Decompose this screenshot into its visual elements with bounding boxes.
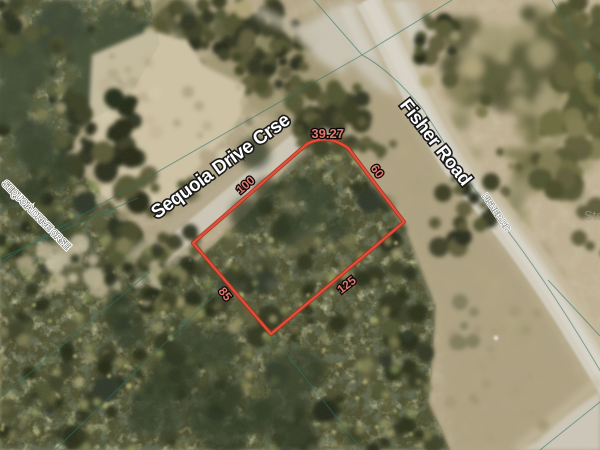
svg-text:Ste: Ste — [584, 208, 600, 223]
svg-text:39.27: 39.27 — [311, 126, 344, 141]
